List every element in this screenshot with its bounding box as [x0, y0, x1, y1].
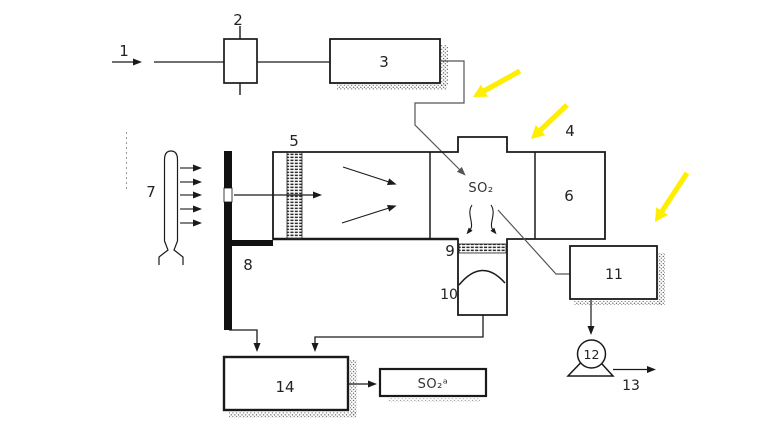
so2-label: SO₂ — [468, 181, 493, 196]
highlight-arrow-duct-top — [531, 103, 569, 139]
label-7: 7 — [146, 183, 156, 201]
label-10: 10 — [440, 287, 458, 303]
label-4: 4 — [565, 122, 575, 140]
label-5: 5 — [289, 132, 299, 150]
so2a-box-shadow — [388, 398, 480, 402]
lamp-7-tube — [159, 151, 183, 265]
label-14: 14 — [275, 378, 294, 396]
so2a-label: SO₂ᵃ — [418, 377, 449, 392]
wall8-drain-to-box14 — [229, 330, 257, 344]
label-1: 1 — [119, 42, 129, 60]
main-chamber-outline — [273, 137, 605, 315]
highlight-arrow-feed-line — [473, 69, 521, 97]
label-11: 11 — [605, 267, 623, 283]
schematic-canvas: 1 2 3 5 4 6 SO₂ 9 10 7 — [0, 0, 780, 431]
box14-insulation-bottom — [229, 412, 356, 418]
wall-8-baffle — [232, 240, 273, 246]
gas-wavy-arrow-left — [470, 205, 472, 230]
spray-arrow-upper — [343, 167, 389, 182]
label-2: 2 — [233, 11, 243, 29]
highlight-arrow-box11 — [655, 172, 689, 222]
vessel10-drain-to-box14 — [315, 315, 483, 344]
label-9: 9 — [445, 242, 455, 260]
wall-8 — [224, 151, 232, 330]
box11-insulation-right — [658, 253, 665, 305]
label-13: 13 — [622, 378, 640, 394]
process-flow-schematic: 1 2 3 5 4 6 SO₂ 9 10 7 — [0, 0, 780, 431]
label-3: 3 — [379, 53, 389, 71]
label-8: 8 — [243, 256, 253, 274]
filter-9-screen — [459, 244, 506, 253]
box3-insulation-right — [441, 45, 448, 86]
box14-insulation-right — [350, 360, 357, 415]
box11-insulation-bottom — [574, 301, 662, 305]
vessel-10-dome — [459, 270, 505, 285]
spray-arrow-lower — [342, 208, 389, 223]
label-6: 6 — [564, 187, 574, 205]
wall-8-window — [224, 188, 232, 202]
box3-insulation-bottom — [337, 84, 447, 90]
gas-wavy-arrow-right — [491, 205, 493, 230]
label-12: 12 — [584, 347, 600, 362]
valve-2-symbol — [224, 39, 257, 83]
sampling-line-to-box11 — [498, 210, 570, 274]
lamp-radiation-arrows — [180, 168, 194, 223]
